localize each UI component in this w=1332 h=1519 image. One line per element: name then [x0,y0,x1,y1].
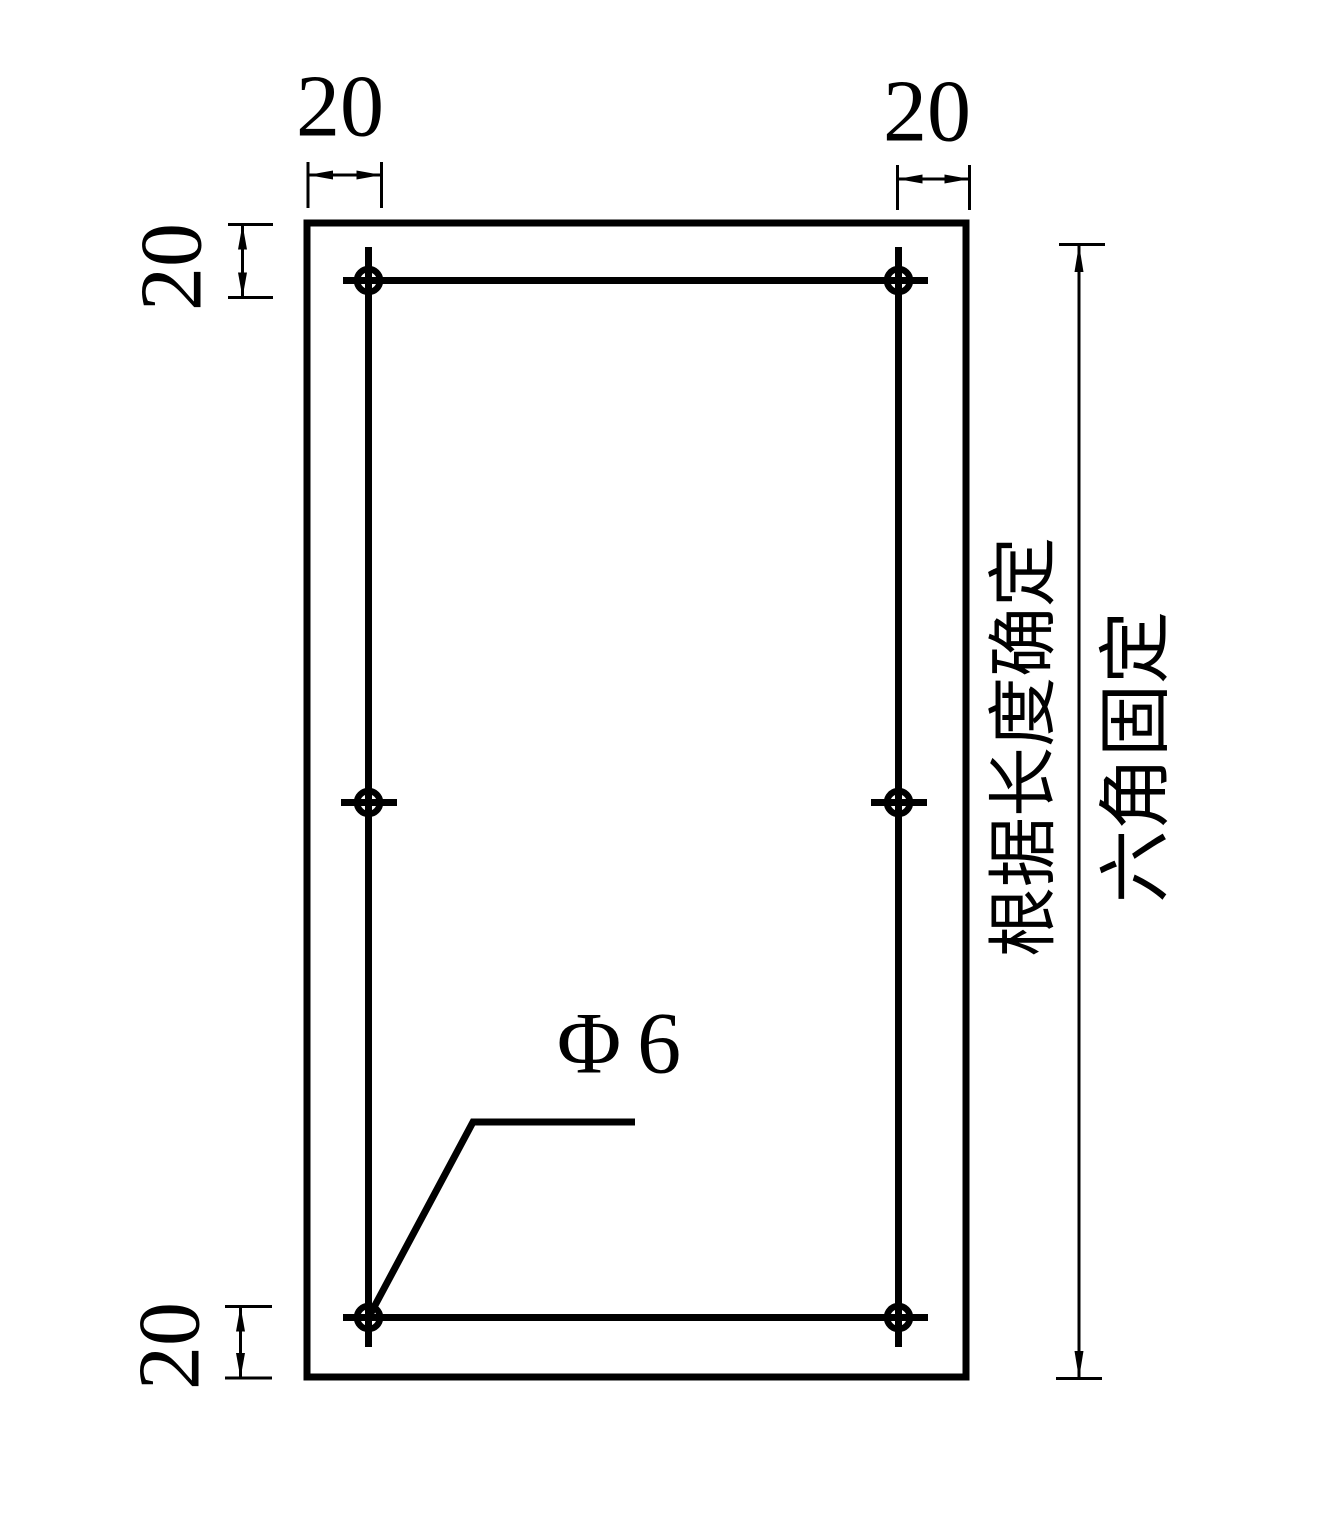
arrowhead-right-icon [357,171,382,180]
dimension-left-top: 20 [124,223,274,311]
dimension-left-bottom: 20 [122,1302,273,1390]
hole-callout: Φ6 [369,996,698,1318]
hole-pattern [341,247,928,1347]
dimension-label: 20 [296,59,384,156]
hole-diameter-label: Φ6 [557,996,697,1093]
arrowhead-right-icon [945,175,970,184]
dimension-top-left: 20 [296,59,384,209]
annotations: 根据长度确定 六角固定 [987,537,1177,957]
panel [307,223,966,1377]
arrowhead-up-icon [236,1307,245,1332]
note-hex-fixing: 六角固定 [1096,611,1177,903]
arrowhead-up-icon [238,225,247,250]
dimension-top-right: 20 [883,64,971,211]
arrowhead-down-icon [1075,1351,1084,1379]
arrowhead-up-icon [1075,245,1084,273]
drawing-stage: 20 20 20 20 [0,0,1332,1519]
technical-drawing: 20 20 20 20 [0,0,1332,1519]
arrowhead-left-icon [898,175,923,184]
dimension-label: 20 [124,223,221,311]
arrowhead-down-icon [238,273,247,298]
dimension-label: 20 [883,64,971,161]
panel-outline [307,223,966,1377]
arrowhead-down-icon [236,1353,245,1378]
note-length-determined: 根据长度确定 [987,537,1064,957]
dimension-label: 20 [122,1302,219,1390]
leader-line [369,1122,636,1318]
arrowhead-left-icon [308,171,333,180]
